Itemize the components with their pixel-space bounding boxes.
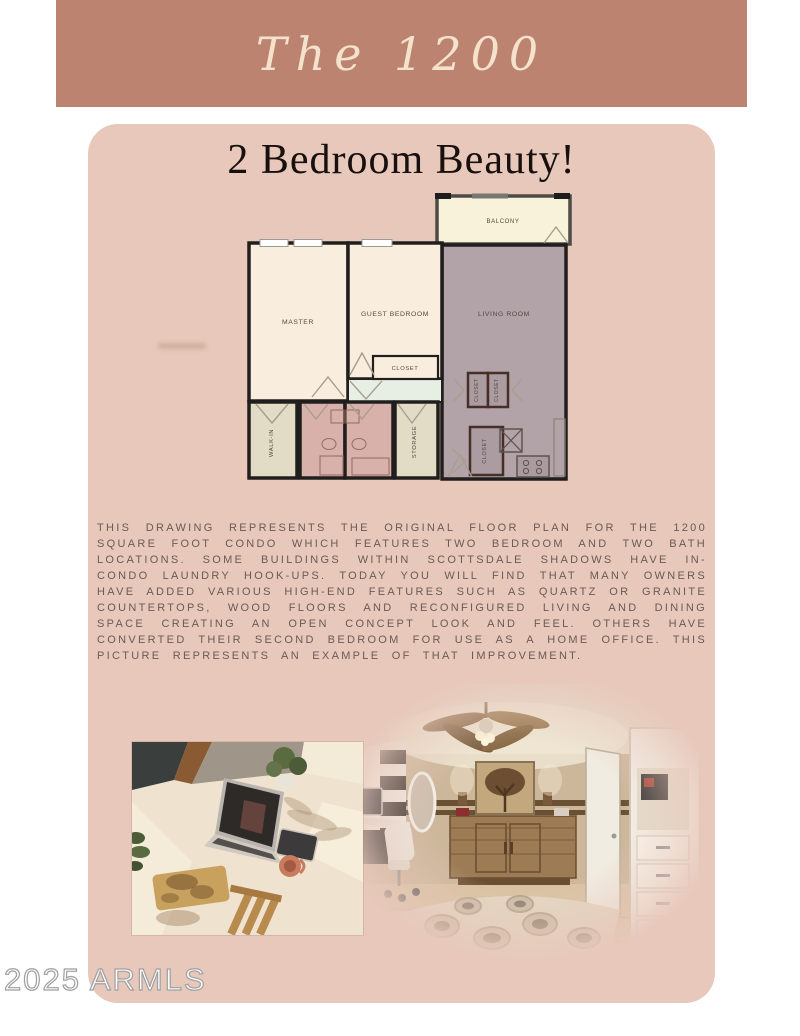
hallway bbox=[348, 379, 442, 402]
description-paragraph: THIS DRAWING REPRESENTS THE ORIGINAL FLO… bbox=[97, 520, 707, 664]
floor-plan-svg: MASTER GUEST BEDROOM LIVING ROOM BALCONY… bbox=[246, 193, 572, 481]
label-closet-right: CLOSET bbox=[494, 378, 500, 402]
bathroom-1 bbox=[300, 402, 345, 478]
label-entry-closet: CLOSET bbox=[482, 438, 488, 463]
office-desk-photo bbox=[132, 742, 363, 935]
label-guest-closet: CLOSET bbox=[392, 366, 419, 372]
label-master: MASTER bbox=[282, 319, 314, 326]
balcony-rail bbox=[472, 194, 508, 199]
label-storage: STORAGE bbox=[412, 426, 418, 458]
photo-fade-edge bbox=[358, 684, 700, 960]
home-office-room-photo bbox=[358, 684, 700, 960]
label-balcony: BALCONY bbox=[487, 219, 520, 225]
wall-corner bbox=[435, 193, 451, 199]
label-living-room: LIVING ROOM bbox=[478, 311, 530, 318]
window bbox=[260, 240, 288, 247]
window bbox=[294, 240, 322, 247]
window bbox=[362, 240, 392, 247]
armls-watermark: 2025 ARMLS bbox=[4, 962, 207, 998]
flyer-page: The 1200 2 Bedroom Beauty! bbox=[0, 0, 800, 1036]
wall-corner bbox=[554, 193, 570, 199]
label-walk-in: WALK-IN bbox=[269, 429, 275, 457]
flyer-card: 2 Bedroom Beauty! bbox=[88, 124, 715, 1003]
faint-smudge bbox=[158, 343, 206, 349]
stove bbox=[517, 456, 549, 477]
label-guest-bedroom: GUEST BEDROOM bbox=[361, 311, 429, 318]
label-closet-left: CLOSET bbox=[474, 378, 480, 402]
floor-plan-diagram: MASTER GUEST BEDROOM LIVING ROOM BALCONY… bbox=[246, 193, 572, 481]
desk-photo-art bbox=[132, 742, 363, 935]
banner: The 1200 bbox=[56, 0, 747, 107]
flyer-title: The 1200 bbox=[256, 27, 547, 81]
card-heading: 2 Bedroom Beauty! bbox=[88, 136, 715, 184]
